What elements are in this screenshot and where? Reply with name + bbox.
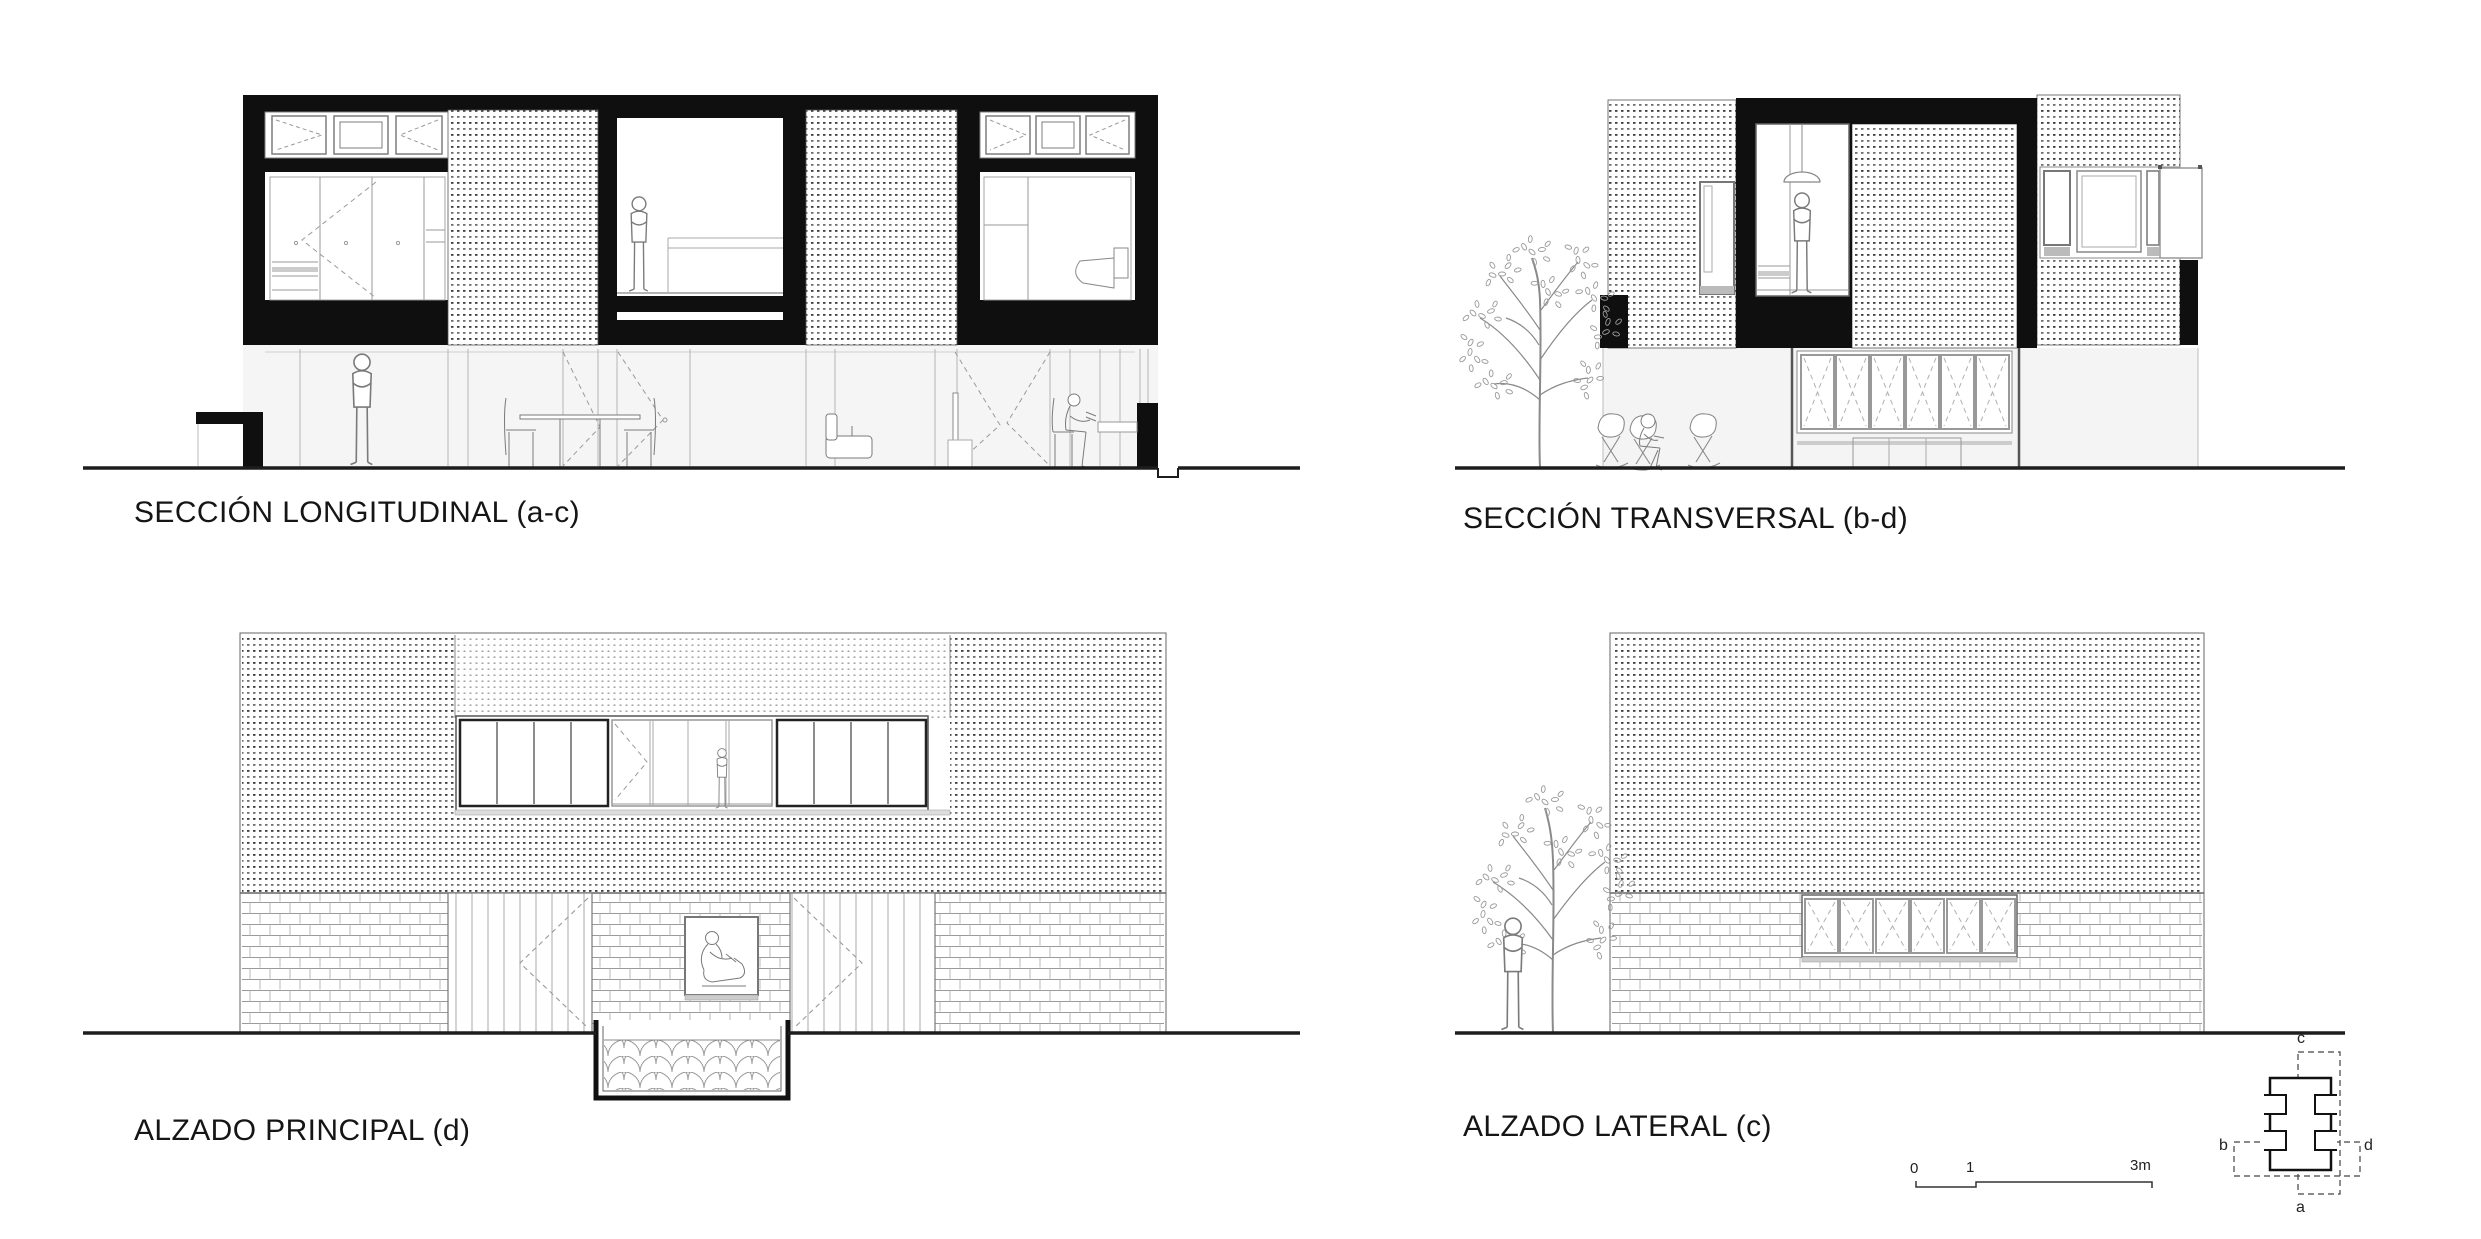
sunken-patio <box>596 1020 788 1098</box>
longitudinal-section-drawing <box>83 95 1300 477</box>
ground-step <box>1158 468 1178 477</box>
wardrobe <box>270 177 445 300</box>
open-shutter-panel <box>2160 168 2202 258</box>
longitudinal-section-title: SECCIÓN LONGITUDINAL (a-c) <box>134 496 580 530</box>
standing-person-figure <box>629 197 648 291</box>
clerestory-windows <box>265 112 448 158</box>
folding-window-band <box>1802 895 2017 962</box>
courtyard-window <box>685 917 758 1000</box>
drawing-sheet-canvas <box>0 0 2481 1239</box>
facade-window <box>1700 182 1734 294</box>
hatched-wall-panel <box>448 110 598 345</box>
hatched-wall-panel <box>806 110 957 345</box>
principal-elevation-drawing <box>83 633 1300 1098</box>
upper-window-band <box>2040 165 2202 258</box>
lateral-elevation-title: ALZADO LATERAL (c) <box>1463 1110 1772 1144</box>
plan-footprint <box>2270 1078 2331 1170</box>
scale-bar <box>1916 1181 2152 1188</box>
key-plan <box>2234 1052 2360 1194</box>
architectural-sheet: { "sheet": { "title_labels": { "longitud… <box>0 0 2481 1239</box>
ribbon-window-band <box>455 716 950 815</box>
principal-elevation-title: ALZADO PRINCIPAL (d) <box>134 1114 470 1148</box>
transversal-section-drawing <box>1452 95 2345 470</box>
transversal-section-title: SECCIÓN TRANSVERSAL (b-d) <box>1463 502 1908 536</box>
key-plan-label-c: c <box>2297 1030 2305 1048</box>
scale-tick-1: 1 <box>1966 1159 1974 1176</box>
lateral-elevation-drawing <box>1455 633 2345 1033</box>
key-plan-label-a: a <box>2296 1199 2305 1217</box>
bathroom <box>984 177 1131 300</box>
stair-window <box>1756 124 1849 296</box>
key-plan-label-d: d <box>2364 1137 2373 1155</box>
clerestory-windows <box>980 112 1135 158</box>
scale-tick-3m: 3m <box>2130 1157 2151 1174</box>
double-height-room <box>617 197 783 293</box>
scale-tick-0: 0 <box>1910 1160 1918 1177</box>
standing-person-figure <box>1501 918 1523 1029</box>
key-plan-label-b: b <box>2219 1137 2228 1155</box>
